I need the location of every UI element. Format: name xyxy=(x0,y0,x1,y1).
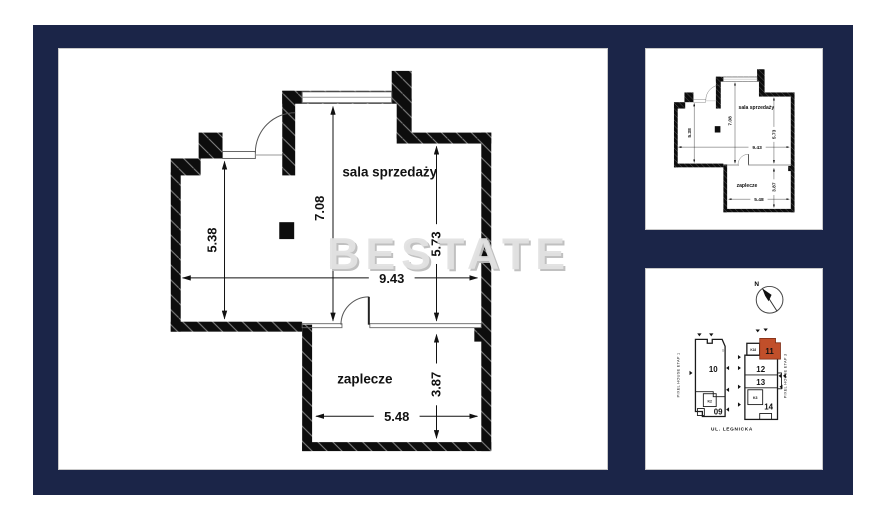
dim-label-3-87: 3.87 xyxy=(771,182,777,192)
column-pillar xyxy=(715,126,721,132)
divider-wall xyxy=(302,324,481,328)
site-map-drawing: N 10 09 K2 11 xyxy=(646,269,822,469)
room-k18-label: K18 xyxy=(750,348,756,352)
window-top xyxy=(723,77,757,81)
screenshot-root: { "watermark": "BESTATE", "plan": { "roo… xyxy=(0,0,872,508)
dim-label-5-48: 5.48 xyxy=(384,409,409,424)
room-k3-label: K3 xyxy=(753,396,758,400)
room-label-zaplecze: zaplecze xyxy=(337,371,392,386)
svg-text:BESTATE: BESTATE xyxy=(327,229,571,279)
window-left xyxy=(223,152,283,159)
door-arc-zaplecze xyxy=(341,297,369,325)
window-left xyxy=(693,100,715,103)
dim-label-9-43: 9.43 xyxy=(752,145,762,151)
dim-label-7-08: 7.08 xyxy=(312,196,327,221)
building-etap3: 11 12 13 14 K18 K3 xyxy=(745,338,782,419)
divider-wall xyxy=(723,164,790,165)
floor-plan-thumbnail-panel: 5.38 7.08 5.73 9.43 3.87 5.48 sala sprze… xyxy=(645,48,823,230)
dim-label-7-08: 7.08 xyxy=(728,116,734,126)
dim-label-3-87: 3.87 xyxy=(428,372,443,397)
compass-n-label: N xyxy=(754,281,759,288)
unit-12-label: 12 xyxy=(756,365,765,374)
room-label-sala: sala sprzedaży xyxy=(342,164,437,179)
unit-11-label: 11 xyxy=(765,347,774,356)
etap1-side-label: PIXEL HOUSE ETAP 1 xyxy=(677,353,681,398)
room-label-sala: sala sprzedaży xyxy=(739,105,775,111)
street-label: UL. LEGNICKA xyxy=(711,426,753,432)
column-pillar xyxy=(279,222,294,239)
dim-label-5-48: 5.48 xyxy=(754,197,764,203)
unit-14-label: 14 xyxy=(764,403,773,412)
floor-plan-drawing: 5.38 7.08 5.73 9.43 3.87 5.48 sala sprze… xyxy=(59,49,607,469)
site-map-panel: N 10 09 K2 11 xyxy=(645,268,823,470)
unit-09-label: 09 xyxy=(714,407,723,416)
unit-10-label: 10 xyxy=(709,365,718,374)
unit-13-label: 13 xyxy=(756,378,765,387)
room-label-zaplecze: zaplecze xyxy=(737,183,758,189)
door-arc-zaplecze xyxy=(738,154,748,164)
room-k2-label: K2 xyxy=(708,400,713,404)
dim-label-5-38: 5.38 xyxy=(205,228,220,253)
dim-label-5-38: 5.38 xyxy=(687,128,693,138)
navy-frame: 5.38 7.08 5.73 9.43 3.87 5.48 sala sprze… xyxy=(33,25,853,495)
compass-icon: N xyxy=(754,281,783,313)
watermark: BESTATE BESTATE xyxy=(327,229,573,281)
window-top xyxy=(302,92,392,103)
floor-plan-drawing: 5.38 7.08 5.73 9.43 3.87 5.48 sala sprze… xyxy=(645,61,823,219)
dim-label-5-73: 5.73 xyxy=(771,129,777,139)
floor-plan-panel: 5.38 7.08 5.73 9.43 3.87 5.48 sala sprze… xyxy=(58,48,608,470)
building-etap1: 10 09 K2 xyxy=(695,339,725,416)
